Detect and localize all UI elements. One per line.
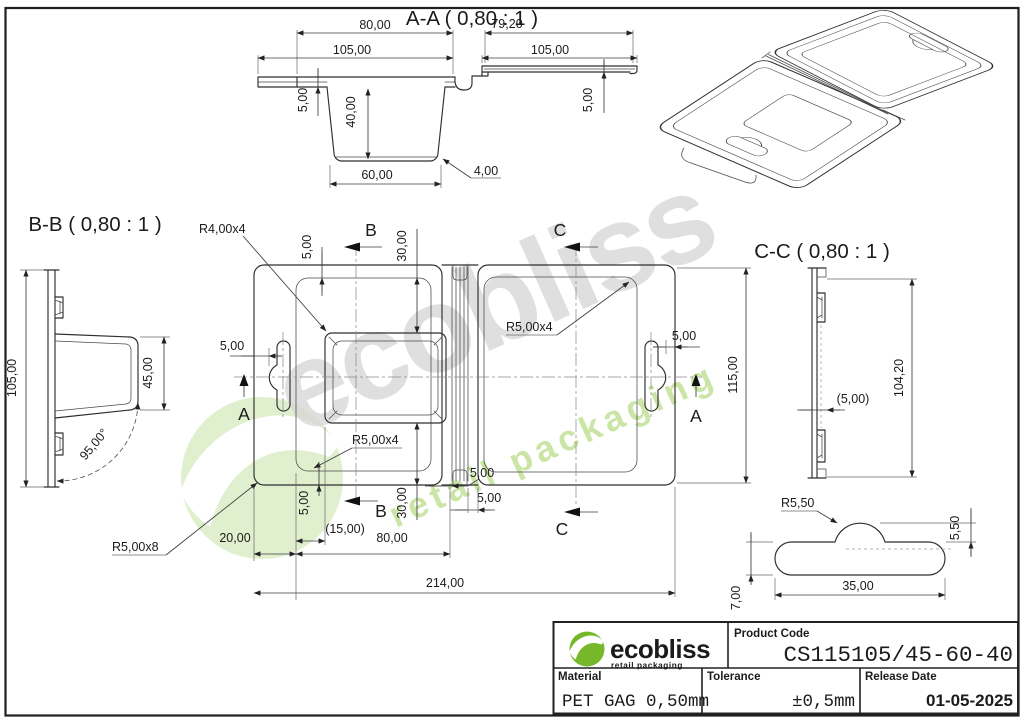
dim-plan-214: 214,00 xyxy=(426,576,464,590)
section-marker-a-right: A xyxy=(690,406,702,426)
technical-drawing-canvas: ecobliss retail packaging A-A ( 0,80 : 1… xyxy=(0,0,1024,723)
dim-plan-bottom30: 30,00 xyxy=(395,487,409,518)
dim-aa-40: 40,00 xyxy=(344,96,358,127)
section-marker-c-top: C xyxy=(554,220,567,240)
dim-cc-10420: 104,20 xyxy=(892,359,906,397)
dim-bb-105: 105,00 xyxy=(5,359,19,397)
dim-bb-95deg: 95,00° xyxy=(77,426,111,463)
product-code-label: Product Code xyxy=(734,628,809,640)
label-r5x8: R5,00x8 xyxy=(112,540,159,554)
tolerance-value: ±0,5mm xyxy=(792,692,855,712)
dim-slot-35: 35,00 xyxy=(842,579,873,593)
release-date-label: Release Date xyxy=(865,671,937,683)
dim-plan-80: 80,00 xyxy=(376,531,407,545)
section-marker-b-top: B xyxy=(365,220,377,240)
dim-aa-5-left: 5,00 xyxy=(296,88,310,112)
section-marker-b-bottom: B xyxy=(375,501,387,521)
dim-plan-right5: 5,00 xyxy=(672,329,696,343)
release-date-value: 01-05-2025 xyxy=(926,691,1013,710)
dim-aa-105-left: 105,00 xyxy=(333,43,371,57)
view-section-aa: A-A ( 0,80 : 1 ) 80,00 105,00 5,00 40,00… xyxy=(258,7,637,188)
dim-aa-80: 80,00 xyxy=(359,18,390,32)
view-bb-title: B-B ( 0,80 : 1 ) xyxy=(28,213,161,236)
section-marker-c-bottom: C xyxy=(556,519,569,539)
dim-bb-45: 45,00 xyxy=(141,357,155,388)
label-r4x4: R4,00x4 xyxy=(199,222,246,236)
dim-plan-bottom5: 5,00 xyxy=(297,491,311,515)
view-section-cc: C-C ( 0,80 : 1 ) (5,00) 104,20 R5,50 xyxy=(754,240,917,523)
section-marker-a-left: A xyxy=(238,404,250,424)
title-block: ecobliss retail packaging Product Code C… xyxy=(554,622,1019,714)
dim-plan-hinge5-top: 5,00 xyxy=(470,466,494,480)
dim-slot-550: 5,50 xyxy=(948,516,962,540)
view-section-bb: B-B ( 0,80 : 1 ) 105,00 45,00 95,00° xyxy=(5,213,170,487)
material-label: Material xyxy=(558,671,601,683)
logo-brand-text: ecobliss xyxy=(610,634,710,664)
dim-aa-105-right: 105,00 xyxy=(531,43,569,57)
tolerance-label: Tolerance xyxy=(707,671,760,683)
view-cc-title: C-C ( 0,80 : 1 ) xyxy=(754,240,890,263)
dim-plan-left5: 5,00 xyxy=(220,339,244,353)
label-r550: R5,50 xyxy=(781,496,814,510)
dim-plan-top30: 30,00 xyxy=(395,230,409,261)
dim-plan-20: 20,00 xyxy=(219,531,250,545)
dim-plan-15: (15,00) xyxy=(325,522,365,536)
dim-aa-7920: 79,20 xyxy=(491,17,522,31)
view-isometric xyxy=(655,8,998,190)
label-r5x4-right: R5,00x4 xyxy=(506,320,553,334)
material-value: PET GAG 0,50mm xyxy=(562,692,709,712)
watermark: ecobliss retail packaging xyxy=(181,147,733,559)
label-r5x4-left: R5,00x4 xyxy=(352,433,399,447)
ecobliss-leaf-icon xyxy=(570,632,605,667)
dim-plan-top5: 5,00 xyxy=(300,235,314,259)
dim-slot-7: 7,00 xyxy=(729,586,743,610)
product-code-value: CS115105/45-60-40 xyxy=(783,642,1013,668)
dim-aa-4: 4,00 xyxy=(474,164,498,178)
view-slot-detail: 5,50 35,00 7,00 xyxy=(729,508,976,610)
dim-cc-500: (5,00) xyxy=(837,392,870,406)
dim-plan-115: 115,00 xyxy=(726,356,740,393)
dim-aa-5-right: 5,00 xyxy=(581,88,595,112)
logo-tagline-text: retail packaging xyxy=(611,661,683,670)
drawing-page: ecobliss retail packaging A-A ( 0,80 : 1… xyxy=(0,0,1024,723)
dim-aa-60: 60,00 xyxy=(361,168,392,182)
dim-plan-hinge5-bottom: 5,00 xyxy=(477,491,501,505)
